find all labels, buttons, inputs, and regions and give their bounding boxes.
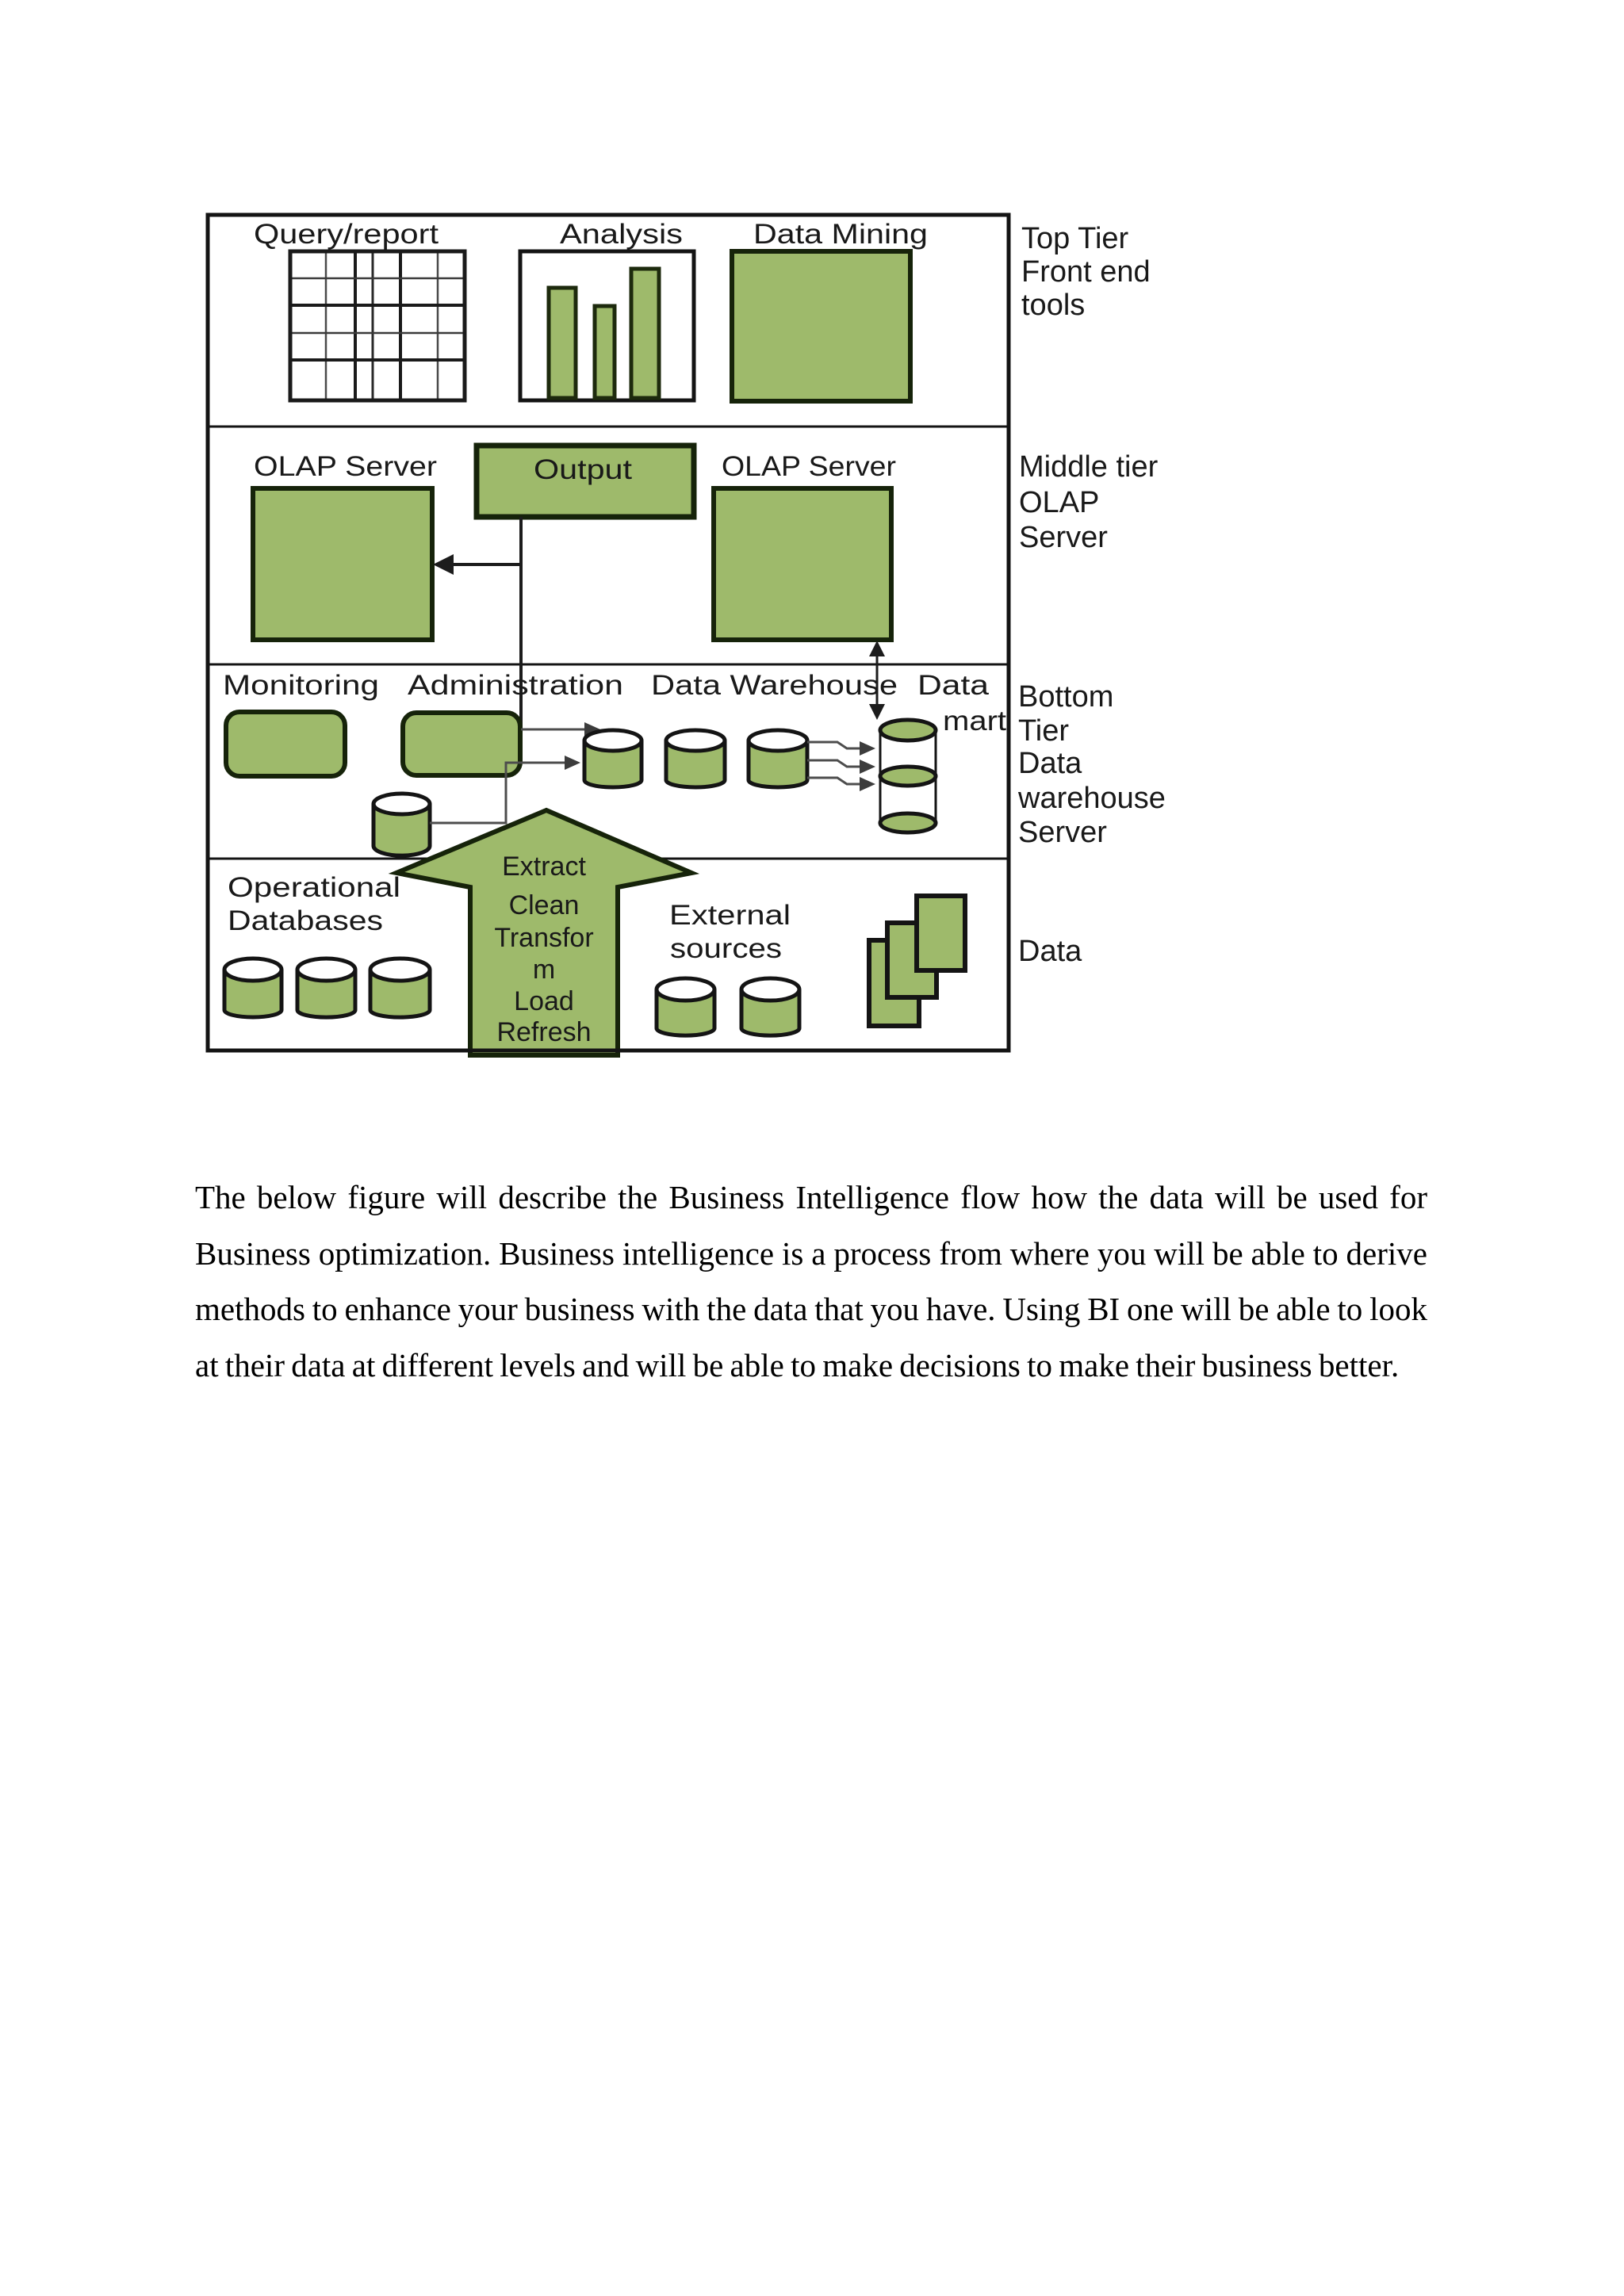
svg-text:m: m xyxy=(533,955,555,985)
svg-text:Data: Data xyxy=(917,670,990,701)
svg-text:Output: Output xyxy=(534,454,632,485)
svg-text:Data Mining: Data Mining xyxy=(753,219,928,250)
svg-text:Clean: Clean xyxy=(509,890,580,920)
svg-text:Administration: Administration xyxy=(408,670,623,701)
svg-text:Front end: Front end xyxy=(1021,255,1151,289)
svg-text:OLAP Server: OLAP Server xyxy=(722,451,896,482)
svg-text:Load: Load xyxy=(514,986,574,1016)
svg-text:Tier: Tier xyxy=(1018,714,1069,748)
svg-text:External: External xyxy=(669,900,791,931)
svg-text:Top Tier: Top Tier xyxy=(1021,222,1129,255)
svg-text:Extract: Extract xyxy=(502,851,586,882)
svg-text:Query/report: Query/report xyxy=(254,219,439,250)
svg-text:tools: tools xyxy=(1021,289,1085,322)
svg-text:Middle tier: Middle tier xyxy=(1019,450,1159,484)
svg-text:Data: Data xyxy=(1018,747,1082,780)
svg-text:Databases: Databases xyxy=(228,905,383,936)
svg-text:Analysis: Analysis xyxy=(560,219,683,250)
svg-text:Monitoring: Monitoring xyxy=(223,670,379,701)
svg-text:Data: Data xyxy=(1018,935,1082,968)
svg-text:sources: sources xyxy=(670,933,782,964)
svg-text:OLAP: OLAP xyxy=(1019,486,1099,519)
svg-text:Bottom: Bottom xyxy=(1018,680,1113,714)
svg-text:Server: Server xyxy=(1019,521,1108,554)
svg-text:Server: Server xyxy=(1018,816,1107,849)
svg-text:Operational: Operational xyxy=(228,872,400,903)
svg-text:warehouse: warehouse xyxy=(1017,782,1166,815)
svg-text:Transfor: Transfor xyxy=(494,923,593,953)
svg-text:OLAP Server: OLAP Server xyxy=(254,451,437,482)
svg-text:Data Warehouse: Data Warehouse xyxy=(651,670,898,701)
svg-text:Refresh: Refresh xyxy=(496,1017,591,1047)
svg-text:mart: mart xyxy=(943,706,1006,737)
